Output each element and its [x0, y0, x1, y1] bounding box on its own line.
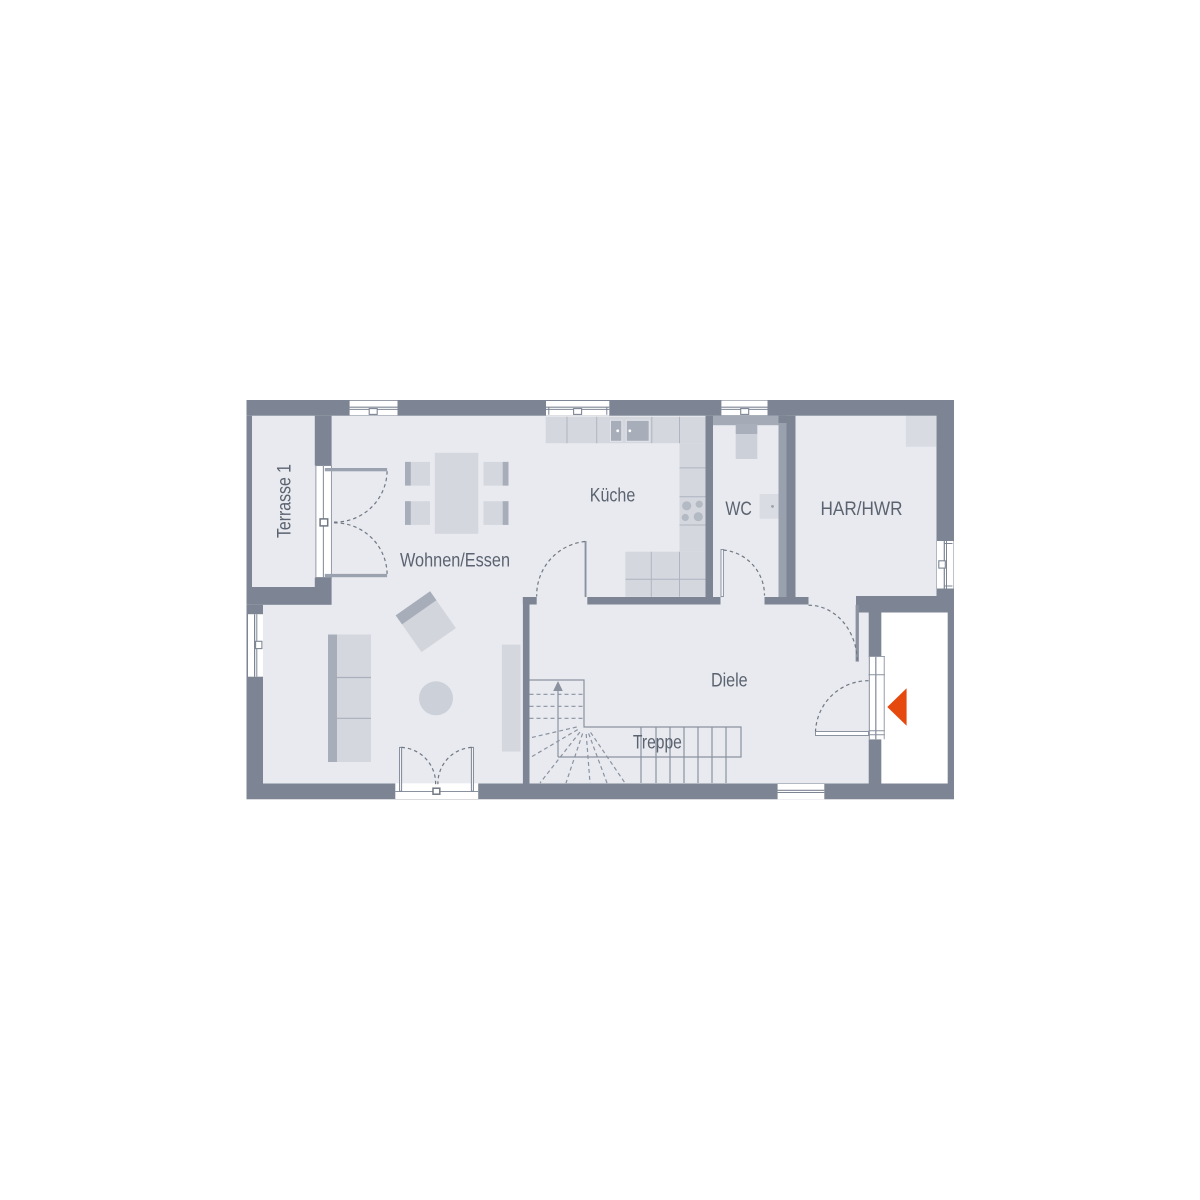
svg-text:Diele: Diele: [711, 671, 748, 692]
svg-text:Küche: Küche: [590, 486, 636, 507]
svg-text:HAR/HWR: HAR/HWR: [821, 499, 903, 520]
svg-text:WC: WC: [725, 499, 752, 520]
svg-text:Wohnen/Essen: Wohnen/Essen: [400, 551, 510, 572]
svg-text:Treppe: Treppe: [633, 733, 682, 754]
svg-text:Terrasse 1: Terrasse 1: [274, 464, 295, 538]
